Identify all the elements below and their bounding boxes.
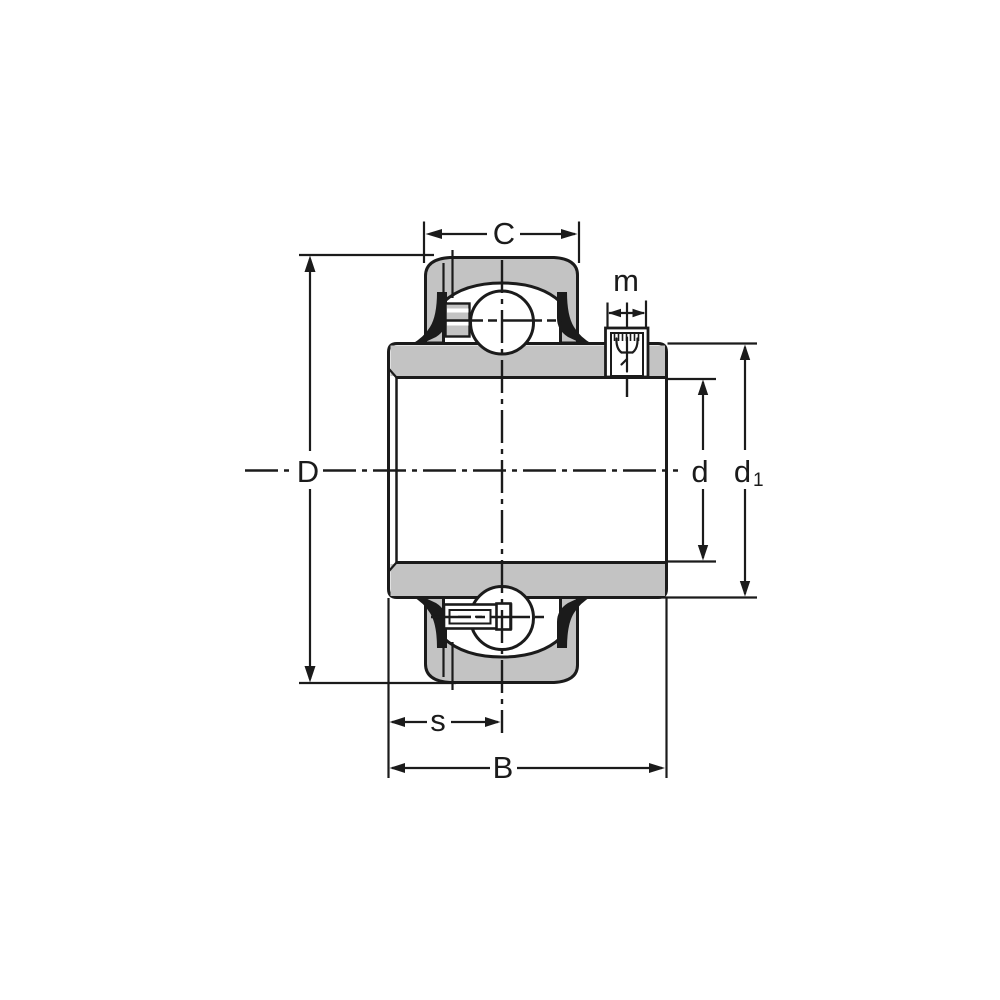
dim-label-C: C	[493, 216, 515, 251]
arrow-m-left	[608, 309, 621, 317]
dim-label-m: m	[613, 263, 639, 298]
arrow-d1-down	[740, 581, 750, 597]
dim-label-d1: d	[734, 454, 751, 489]
arrow-d-down	[698, 545, 708, 561]
arrow-m-right	[633, 309, 646, 317]
arrow-B-left	[390, 763, 406, 773]
arrow-D-down	[305, 666, 316, 683]
arrow-d1-up	[740, 345, 750, 361]
dim-label-s: s	[430, 703, 446, 738]
drawing-canvas: C m D d d 1 s B	[0, 0, 1000, 1000]
arrow-C-left	[426, 229, 443, 239]
dim-label-D: D	[297, 454, 319, 489]
dim-label-d1-subscript: 1	[753, 470, 764, 491]
arrow-d-up	[698, 380, 708, 396]
arrow-C-right	[561, 229, 578, 239]
arrow-s-right	[485, 717, 501, 727]
arrow-D-up	[305, 256, 316, 273]
dim-label-d: d	[691, 454, 708, 489]
arrow-B-right	[649, 763, 665, 773]
bearing-cross-section-diagram: C m D d d 1 s B	[0, 0, 1000, 1000]
inner-ring-bottom-band	[391, 564, 666, 596]
arrow-s-left	[390, 717, 406, 727]
dim-label-B: B	[493, 750, 514, 785]
